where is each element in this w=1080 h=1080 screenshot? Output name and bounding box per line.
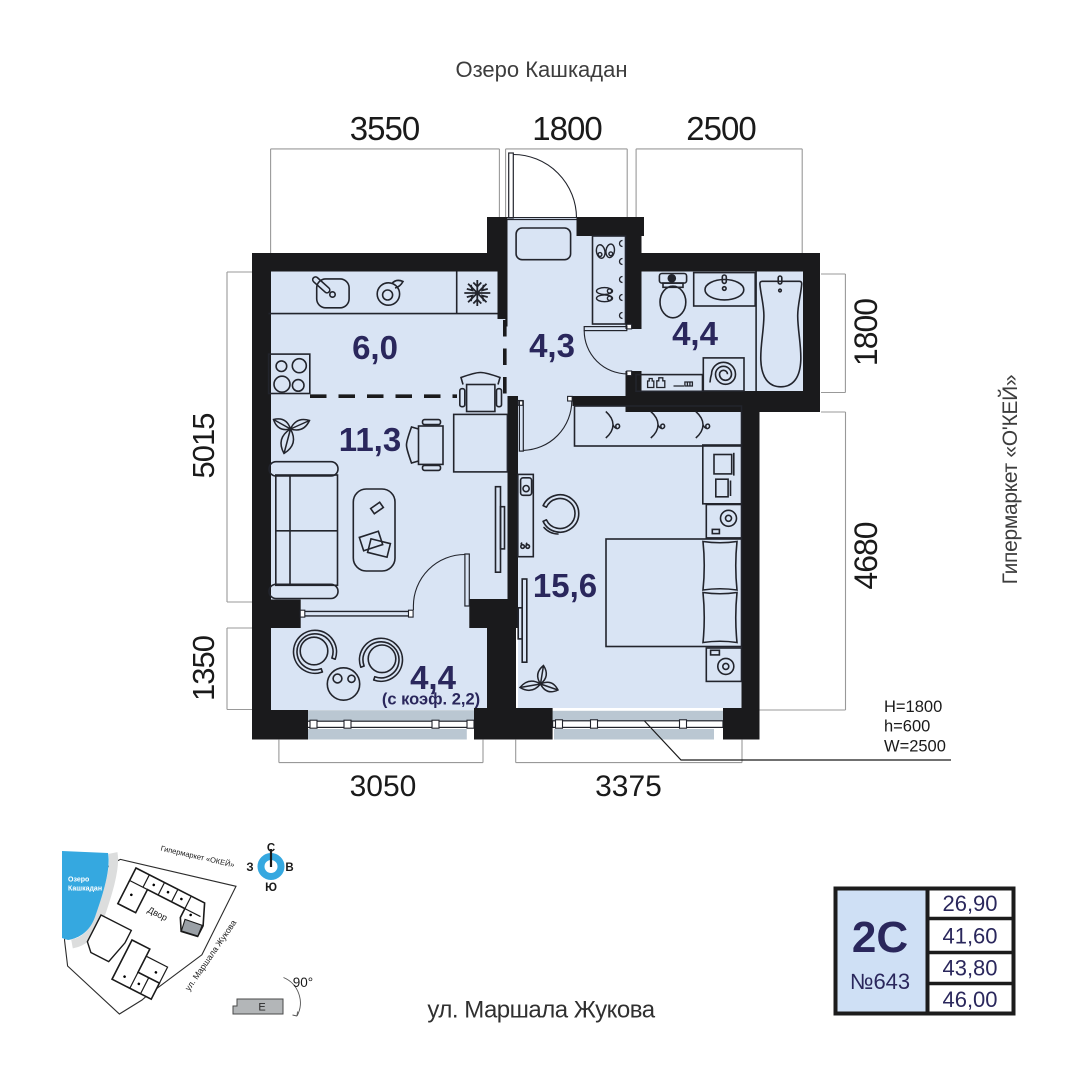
svg-text:h=600: h=600 (884, 718, 930, 736)
svg-text:46,00: 46,00 (942, 987, 997, 1012)
svg-text:№643: №643 (850, 969, 910, 994)
svg-text:Гипермаркет «О'КЕЙ»: Гипермаркет «О'КЕЙ» (998, 375, 1022, 585)
svg-text:6,0: 6,0 (352, 329, 398, 366)
svg-text:2С: 2С (852, 913, 908, 962)
svg-text:W=2500: W=2500 (884, 738, 946, 756)
svg-text:26,90: 26,90 (942, 891, 997, 916)
svg-text:Е: Е (258, 1002, 265, 1014)
svg-text:3050: 3050 (350, 770, 417, 803)
svg-text:2500: 2500 (686, 110, 756, 147)
svg-text:3375: 3375 (595, 770, 662, 803)
svg-text:4,3: 4,3 (529, 327, 575, 364)
svg-text:41,60: 41,60 (942, 924, 997, 949)
svg-text:4680: 4680 (848, 522, 884, 589)
svg-text:4,4: 4,4 (672, 315, 719, 352)
svg-text:(с коэф. 2,2): (с коэф. 2,2) (382, 691, 480, 709)
svg-text:В: В (285, 862, 293, 874)
svg-text:ул. Маршала Жукова: ул. Маршала Жукова (427, 997, 655, 1024)
svg-text:З: З (246, 862, 253, 874)
svg-text:15,6: 15,6 (533, 567, 597, 604)
svg-text:Ю: Ю (265, 882, 277, 894)
svg-text:1800: 1800 (848, 299, 884, 366)
svg-text:90°: 90° (293, 975, 313, 990)
svg-text:3550: 3550 (350, 110, 420, 147)
svg-text:1350: 1350 (186, 635, 221, 701)
svg-text:С: С (267, 843, 275, 855)
svg-text:5015: 5015 (186, 414, 221, 479)
svg-text:1800: 1800 (532, 110, 602, 147)
svg-text:Кашкадан: Кашкадан (68, 886, 102, 893)
svg-text:H=1800: H=1800 (884, 698, 942, 716)
svg-text:Озеро Кашкадан: Озеро Кашкадан (455, 57, 627, 82)
svg-text:Озеро: Озеро (68, 877, 89, 884)
svg-text:11,3: 11,3 (339, 421, 401, 458)
svg-text:43,80: 43,80 (942, 956, 997, 981)
